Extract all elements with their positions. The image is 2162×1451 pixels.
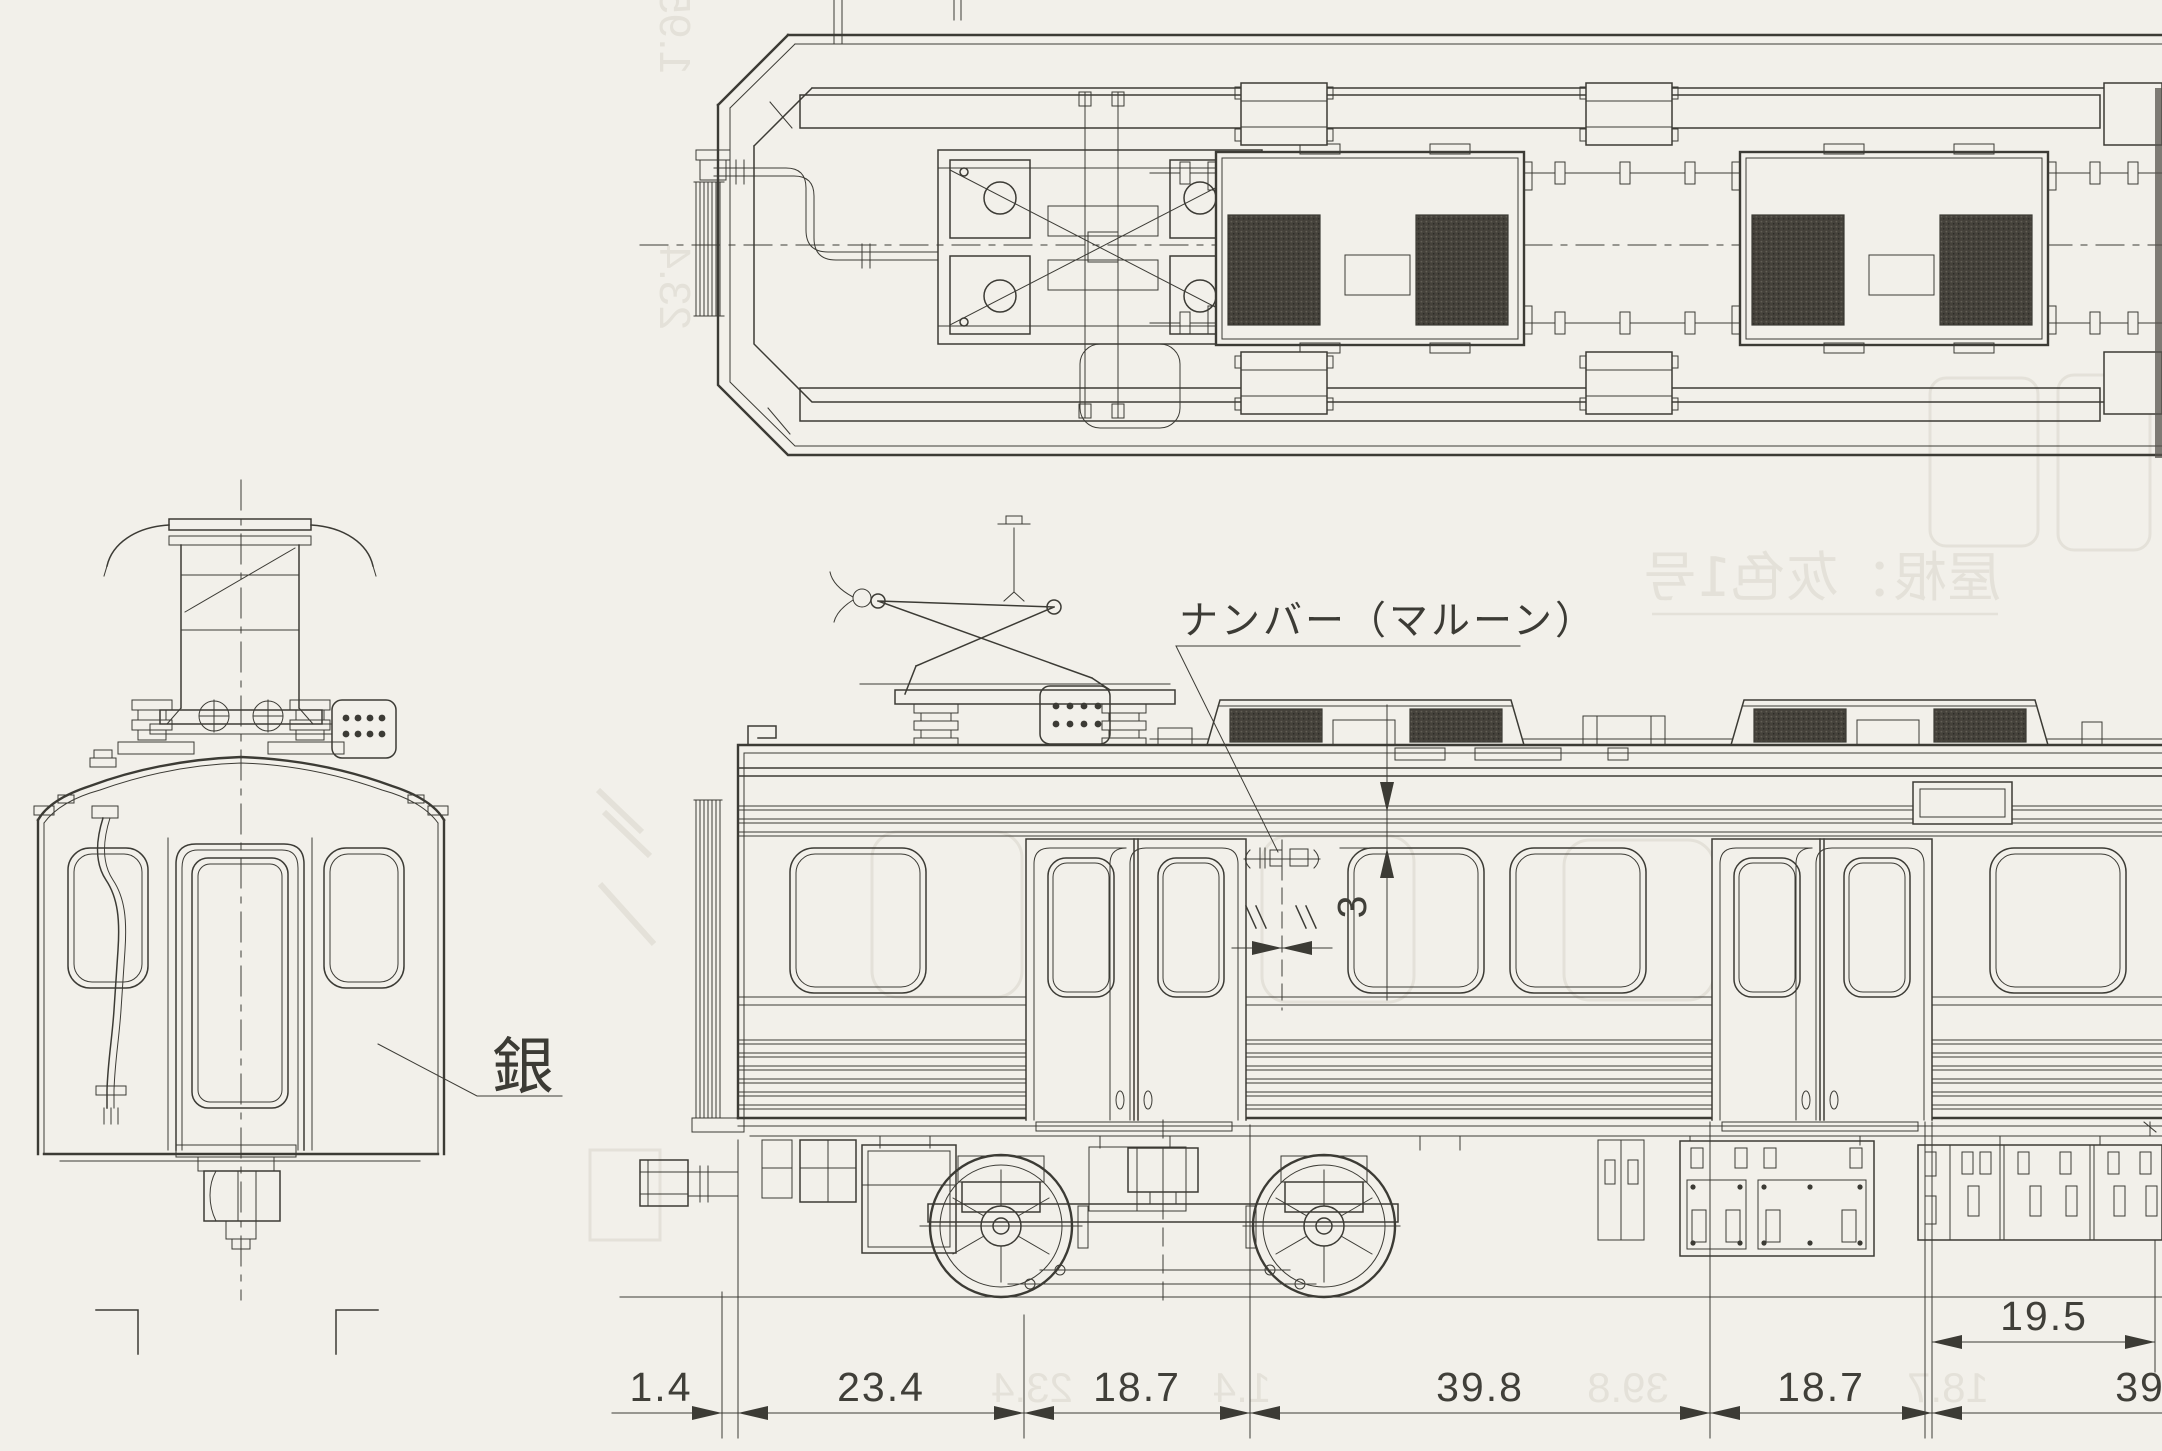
train-drawing: 屋根：灰色1号 23.4 1.4 39.8 18.7 1.95 23.4 bbox=[0, 0, 2162, 1451]
ghost-roof-color-note: 屋根：灰色1号 bbox=[1643, 546, 2001, 609]
ghost-number: 18.7 bbox=[1907, 1364, 1989, 1411]
ghost-number: 23.4 bbox=[650, 244, 699, 330]
dimension-3-label: 3 bbox=[1329, 894, 1375, 919]
dim-label-23-4: 23.4 bbox=[837, 1364, 925, 1410]
ghost-number: 23.4 bbox=[991, 1364, 1073, 1411]
cooler-grille-dark bbox=[1228, 215, 1320, 325]
silver-label-text: 銀 bbox=[492, 1030, 557, 1103]
scan-page-edge bbox=[2155, 88, 2162, 458]
cooler-grille-dark bbox=[1940, 215, 2032, 325]
side-door-1 bbox=[1026, 839, 1246, 1131]
roof-cooler-unit-2 bbox=[1732, 144, 2056, 353]
dim-label-39-8: 39.8 bbox=[1436, 1364, 1524, 1410]
ghost-number: 1.4 bbox=[1213, 1364, 1271, 1411]
dim-label-39: 39 bbox=[2115, 1364, 2162, 1410]
dim-label-18-7b: 18.7 bbox=[1777, 1364, 1865, 1410]
ghost-number: 1.95 bbox=[650, 0, 699, 75]
dim-label-19-5: 19.5 bbox=[2000, 1293, 2088, 1339]
roof-cooler-unit-1 bbox=[1208, 144, 1532, 353]
roof-cooler-side-2 bbox=[1731, 700, 2048, 745]
cooler-grille-dark bbox=[1752, 215, 1844, 325]
cooler-grille-dark bbox=[1416, 215, 1508, 325]
dim-label-1-4: 1.4 bbox=[630, 1364, 693, 1410]
roof-cooler-side-1 bbox=[1207, 700, 1524, 745]
number-plate-label-text: ナンバー（マルーン） bbox=[1179, 599, 1597, 644]
engineering-drawing-sheet: 屋根：灰色1号 23.4 1.4 39.8 18.7 1.95 23.4 bbox=[0, 0, 2162, 1451]
ghost-number: 39.8 bbox=[1587, 1364, 1669, 1411]
side-door-2 bbox=[1712, 839, 1932, 1131]
destination-sign-box bbox=[1913, 782, 2012, 824]
dim-label-18-7: 18.7 bbox=[1093, 1364, 1181, 1410]
